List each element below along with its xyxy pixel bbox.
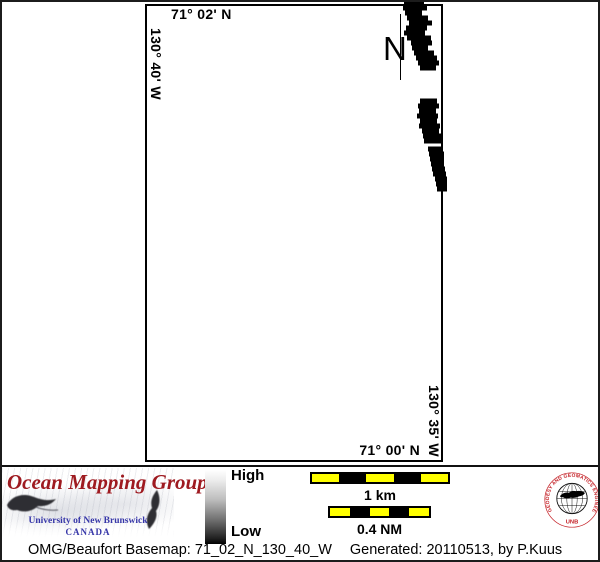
colorbar-high-label: High	[231, 467, 264, 484]
scalebar-nm-label: 0.4 NM	[328, 521, 431, 537]
map-label-right-longitude: 130° 35' W	[426, 385, 441, 457]
scalebar-segment	[366, 474, 393, 482]
scalebar-nm	[328, 506, 431, 518]
scalebar-segment	[312, 474, 339, 482]
depth-colorbar	[205, 470, 226, 544]
scalebar-km	[310, 472, 450, 484]
map-label-bottom-latitude: 71° 00' N	[359, 442, 420, 458]
basemap-page: 71° 02' N 130° 40' W 130° 35' W 71° 00' …	[0, 0, 600, 562]
scalebar-segment	[339, 474, 366, 482]
generated-by-text: Generated: 20110513, by P.Kuus	[350, 542, 562, 558]
footer-caption: OMG/Beaufort Basemap: 71_02_N_130_40_W G…	[28, 542, 588, 558]
scalebar-km-label: 1 km	[310, 487, 450, 503]
omg-logo-subtitle: University of New Brunswick	[2, 516, 174, 526]
globe-icon	[557, 483, 587, 513]
scalebar-segment	[394, 474, 421, 482]
scalebar-segment	[370, 508, 390, 516]
basemap-id-text: OMG/Beaufort Basemap: 71_02_N_130_40_W	[28, 542, 332, 558]
omg-logo-country: CANADA	[2, 527, 174, 537]
map-label-left-longitude: 130° 40' W	[148, 28, 163, 100]
unb-geodesy-seal: GEODESY AND GEOMATICS ENGINEERING UNB	[543, 469, 600, 531]
scalebar-segment	[421, 474, 448, 482]
scalebar-segment	[330, 508, 350, 516]
footer-separator-line	[2, 465, 598, 467]
map-frame: 71° 02' N 130° 40' W 130° 35' W 71° 00' …	[145, 4, 443, 462]
scalebar-segment	[409, 508, 429, 516]
north-arrow-label: N	[383, 32, 407, 65]
colorbar-low-label: Low	[231, 523, 261, 540]
seal-unb-text: UNB	[566, 520, 579, 526]
scalebar-segment	[389, 508, 409, 516]
scalebar-segment	[350, 508, 370, 516]
omg-logo: Ocean Mapping Group University of New Br…	[2, 468, 174, 540]
map-label-top-latitude: 71° 02' N	[171, 6, 232, 22]
